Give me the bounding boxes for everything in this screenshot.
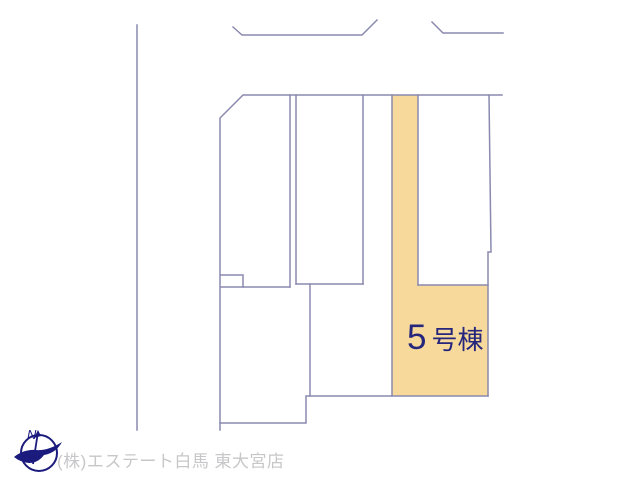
unit-suffix: 号棟 <box>431 327 483 353</box>
site-plan-map <box>0 0 640 480</box>
site-plan-page: 5 号棟 N (株)エステート白馬 東大宮店 <box>0 0 640 480</box>
lot1-corner-notch <box>221 275 243 287</box>
block-boundary-right <box>488 95 491 396</box>
road-edge-top-left <box>233 20 377 35</box>
block-boundary-bottom <box>220 396 488 423</box>
unit-label: 5 号棟 <box>407 320 483 355</box>
unit-number: 5 <box>407 320 426 355</box>
compass-north-label: N <box>27 427 37 442</box>
road-edge-top-right <box>432 22 503 33</box>
company-watermark: (株)エステート白馬 東大宮店 <box>57 447 285 472</box>
